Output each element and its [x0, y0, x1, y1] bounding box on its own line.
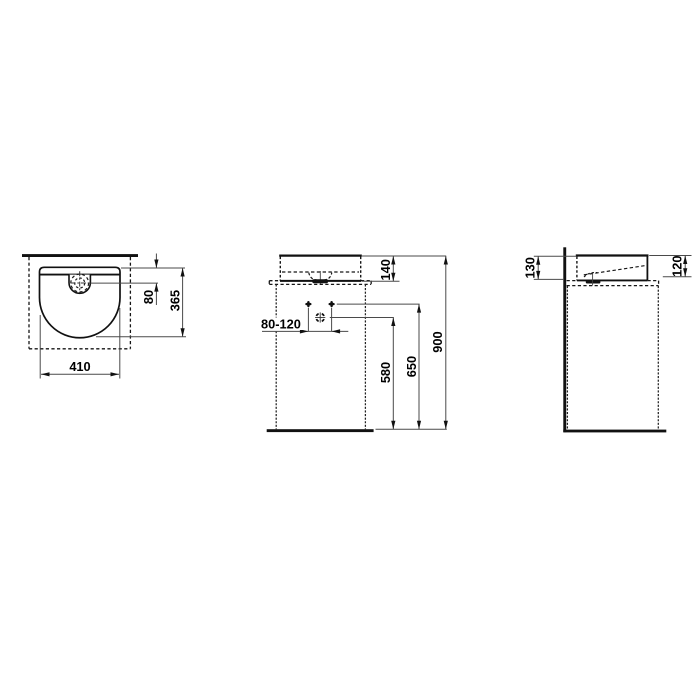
svg-text:80-120: 80-120 [261, 317, 301, 332]
svg-text:900: 900 [430, 331, 445, 352]
svg-text:120: 120 [669, 256, 684, 277]
svg-text:80: 80 [141, 290, 156, 304]
svg-text:410: 410 [69, 359, 90, 374]
svg-text:130: 130 [523, 257, 538, 278]
svg-text:650: 650 [404, 356, 419, 377]
svg-text:365: 365 [168, 290, 183, 311]
svg-text:580: 580 [378, 362, 393, 383]
svg-text:140: 140 [378, 259, 393, 280]
